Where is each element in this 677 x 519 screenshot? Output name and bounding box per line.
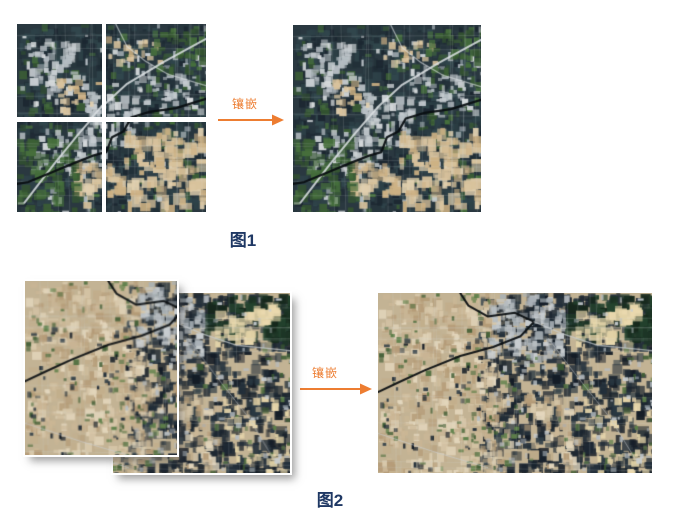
arrow-head-icon [360,384,372,395]
figure1-tile-top-right [106,24,206,117]
figure1-tile-bottom-left [17,122,102,212]
figure2-source-left-photo [25,281,177,455]
figure2-caption: 图2 [290,486,370,511]
arrow-head-icon [272,115,284,126]
figure1-mosaic-arrow [216,113,284,127]
figure2-mosaic-arrow [300,382,372,396]
mosaic-diagram-page: 镶嵌 图1 镶嵌 图2 [0,0,677,519]
figure1-mosaic-result [293,25,481,212]
figure1-mosaic-label: 镶嵌 [212,95,278,112]
figure2-mosaic-result [378,293,652,473]
figure1-tile-bottom-right [106,122,206,212]
figure1-caption: 图1 [203,226,283,251]
figure2-mosaic-label: 镶嵌 [292,364,358,381]
figure1-tile-top-left [17,24,102,117]
